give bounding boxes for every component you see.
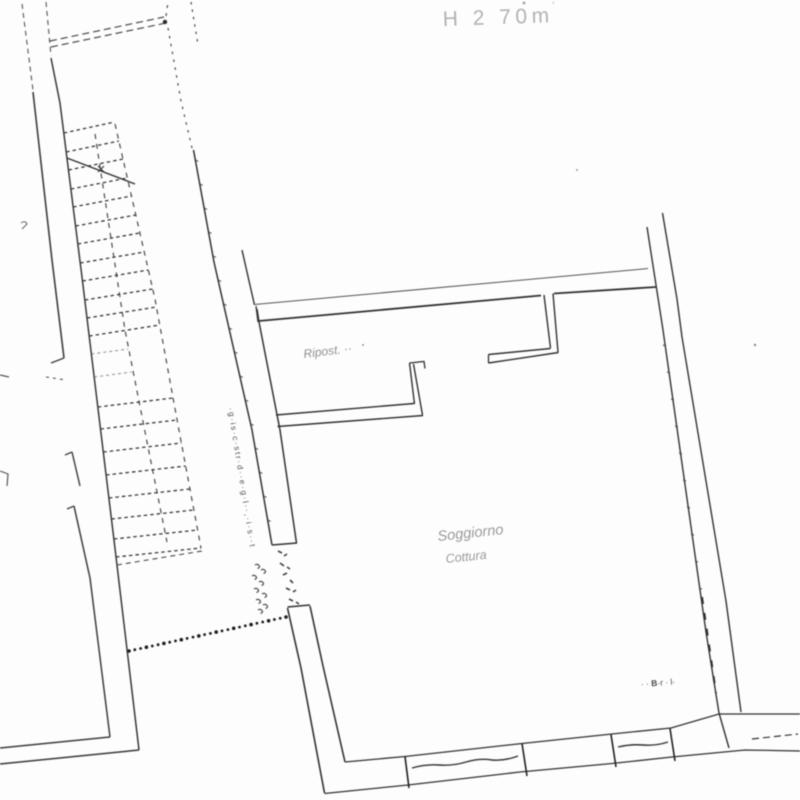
svg-text:’: ’ xyxy=(552,0,555,13)
svg-text:H 2 70m: H 2 70m xyxy=(442,4,554,31)
